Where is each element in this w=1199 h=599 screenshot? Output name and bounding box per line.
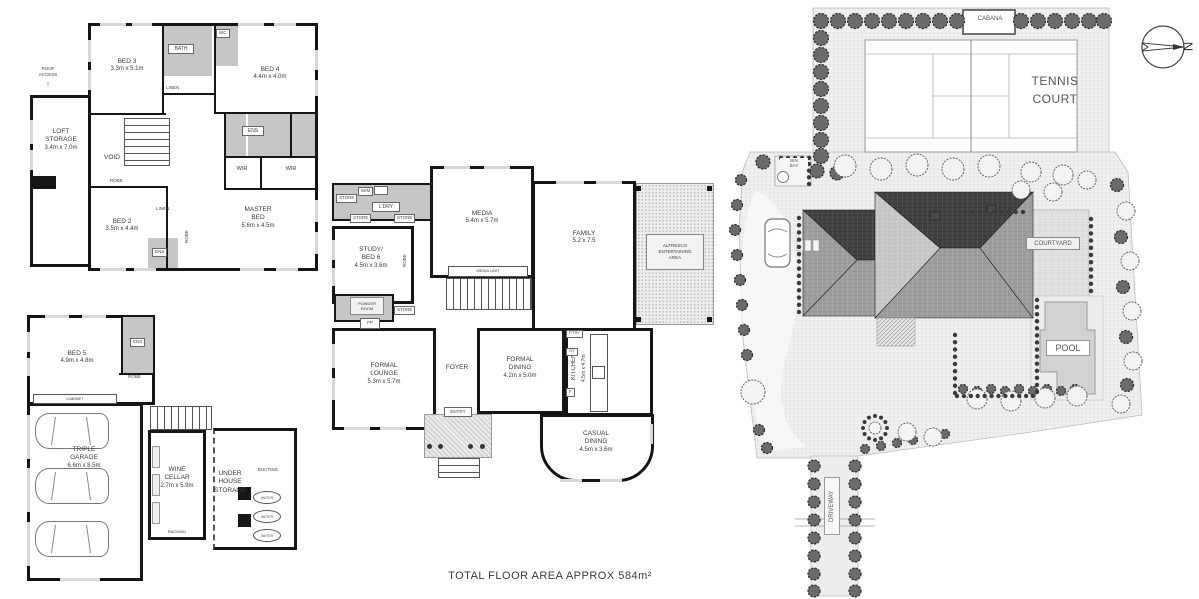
car-icon <box>35 521 109 557</box>
courtyard-paving <box>1025 210 1089 296</box>
cooktop-icon <box>592 366 605 379</box>
roof-access-label: ROOF ACCESS <box>30 66 66 78</box>
linen-badge-mid: LINEN <box>154 206 171 213</box>
bed5-ens-badge: ENS <box>130 338 145 347</box>
powder-room-label: POWDER ROOM <box>350 297 384 315</box>
store-badge: STORE <box>394 306 415 315</box>
pantry-badge: P'TRY <box>566 330 583 338</box>
bed2-label: BED 23.5m x 4.4m <box>94 218 150 234</box>
pool-label: POOL <box>1046 340 1090 356</box>
store-badge: STORE <box>350 214 371 223</box>
bed3-label: BED 33.3m x 5.1m <box>96 58 158 74</box>
loft-label: LOFT STORAGE3.4m x 7.0m <box>34 128 88 153</box>
foyer-label: FOYER <box>438 364 476 372</box>
bed2-ens-badge: ENS <box>152 248 167 257</box>
water-heater-icon: WATER <box>253 529 281 542</box>
site-car-icon <box>765 219 790 267</box>
robe-badge-bed2: ROBE <box>108 178 125 185</box>
entry-steps <box>438 458 480 478</box>
media-unit-label: MEDIA UNIT <box>452 268 524 273</box>
cabana-label: CABANA <box>965 16 1015 22</box>
courtyard-label: COURTYARD <box>1026 237 1080 250</box>
wir-right-label: WIR <box>274 166 308 173</box>
cabana-building <box>963 10 1015 34</box>
fireplace-badge: FP <box>360 318 380 329</box>
laundry-badge: L'DRY <box>372 202 400 212</box>
car-icon <box>35 413 109 449</box>
chimney-block <box>30 176 56 189</box>
wine-cellar-label: WINE CELLAR2.7m x 5.9m <box>154 466 200 491</box>
wc-badge: WC <box>216 29 230 38</box>
water-heater-icon: WATER <box>253 510 281 523</box>
dining-label: FORMAL DINING4.2m x 5.0m <box>496 356 544 381</box>
robe-vert-label: ROBE <box>184 218 194 256</box>
racking-label: RACKING <box>156 529 198 534</box>
void-label: VOID <box>92 154 132 162</box>
media-label: MEDIA5.4m x 5.7m <box>454 210 510 226</box>
car-icon <box>35 468 109 504</box>
floorplan-sheet: ROOF ACCESS ↑ LOFT STORAGE3.4m x 7.0m BE… <box>0 0 1199 599</box>
store-badge: STORE <box>336 194 357 203</box>
ground-stairs <box>446 278 532 310</box>
cabinet-label: CABINET <box>36 396 114 401</box>
family-label: FAMILY5.2 x 7.5 <box>556 230 612 246</box>
total-floor-area-label: TOTAL FLOOR AREA APPROX 584m² <box>400 570 700 582</box>
driveway-label: DRIVEWAY <box>824 477 840 535</box>
ens-tub-area <box>292 114 315 156</box>
bed4-label: BED 44.4m x 4.0m <box>238 66 302 82</box>
store-badge: STORE <box>394 214 415 223</box>
entry-badge: ENTRY <box>444 407 472 417</box>
oven-badge: OV <box>566 348 578 356</box>
roof-access-arrow-icon: ↑ <box>42 80 54 89</box>
bath-badge: BATH <box>168 44 194 54</box>
compass-north-label: N <box>1181 39 1196 55</box>
water-heater-icon: WATER <box>253 491 281 504</box>
kitchen-dims-label: 4.5m x 4.7m <box>581 338 591 398</box>
study-label: STUDY/ BED 64.5m x 3.6m <box>344 246 398 271</box>
site-plan <box>725 0 1199 599</box>
north-compass-icon <box>1142 26 1184 68</box>
bed5-robe-badge: ROBE <box>126 374 143 381</box>
linen-badge-top: LINEN <box>164 85 181 92</box>
study-robe-label: ROBE <box>402 240 413 282</box>
bed5-label: BED 54.9m x 4.8m <box>46 350 108 366</box>
fridge-badge: F <box>566 388 575 397</box>
casual-dining-label: CASUAL DINING4.5m x 3.6m <box>570 430 622 455</box>
washing-machine-badge: W/M <box>358 187 373 196</box>
storage-label: UNDER HOUSE STORAGE <box>208 470 252 495</box>
bin-bay-label: BIN BAY <box>780 158 808 168</box>
wir-left-label: WIR <box>228 166 256 173</box>
alfresco-label: ALFRESCO ENTERTAINING AREA <box>646 234 704 270</box>
entry-porch <box>424 414 492 458</box>
tub-icon <box>374 186 388 195</box>
tennis-court-label: TENNIS COURT <box>1018 72 1092 108</box>
master-label: MASTER BED5.6m x 4.5m <box>228 206 288 231</box>
ens-badge: ENS <box>242 126 264 136</box>
lounge-label: FORMAL LOUNGE5.3m x 5.7m <box>358 362 410 387</box>
garage-label: TRIPLE GARAGE6.6m x 8.5m <box>50 446 118 471</box>
ducting-label: DUCTING <box>246 467 290 473</box>
garage-stairs <box>150 406 212 430</box>
room-family <box>532 181 636 333</box>
